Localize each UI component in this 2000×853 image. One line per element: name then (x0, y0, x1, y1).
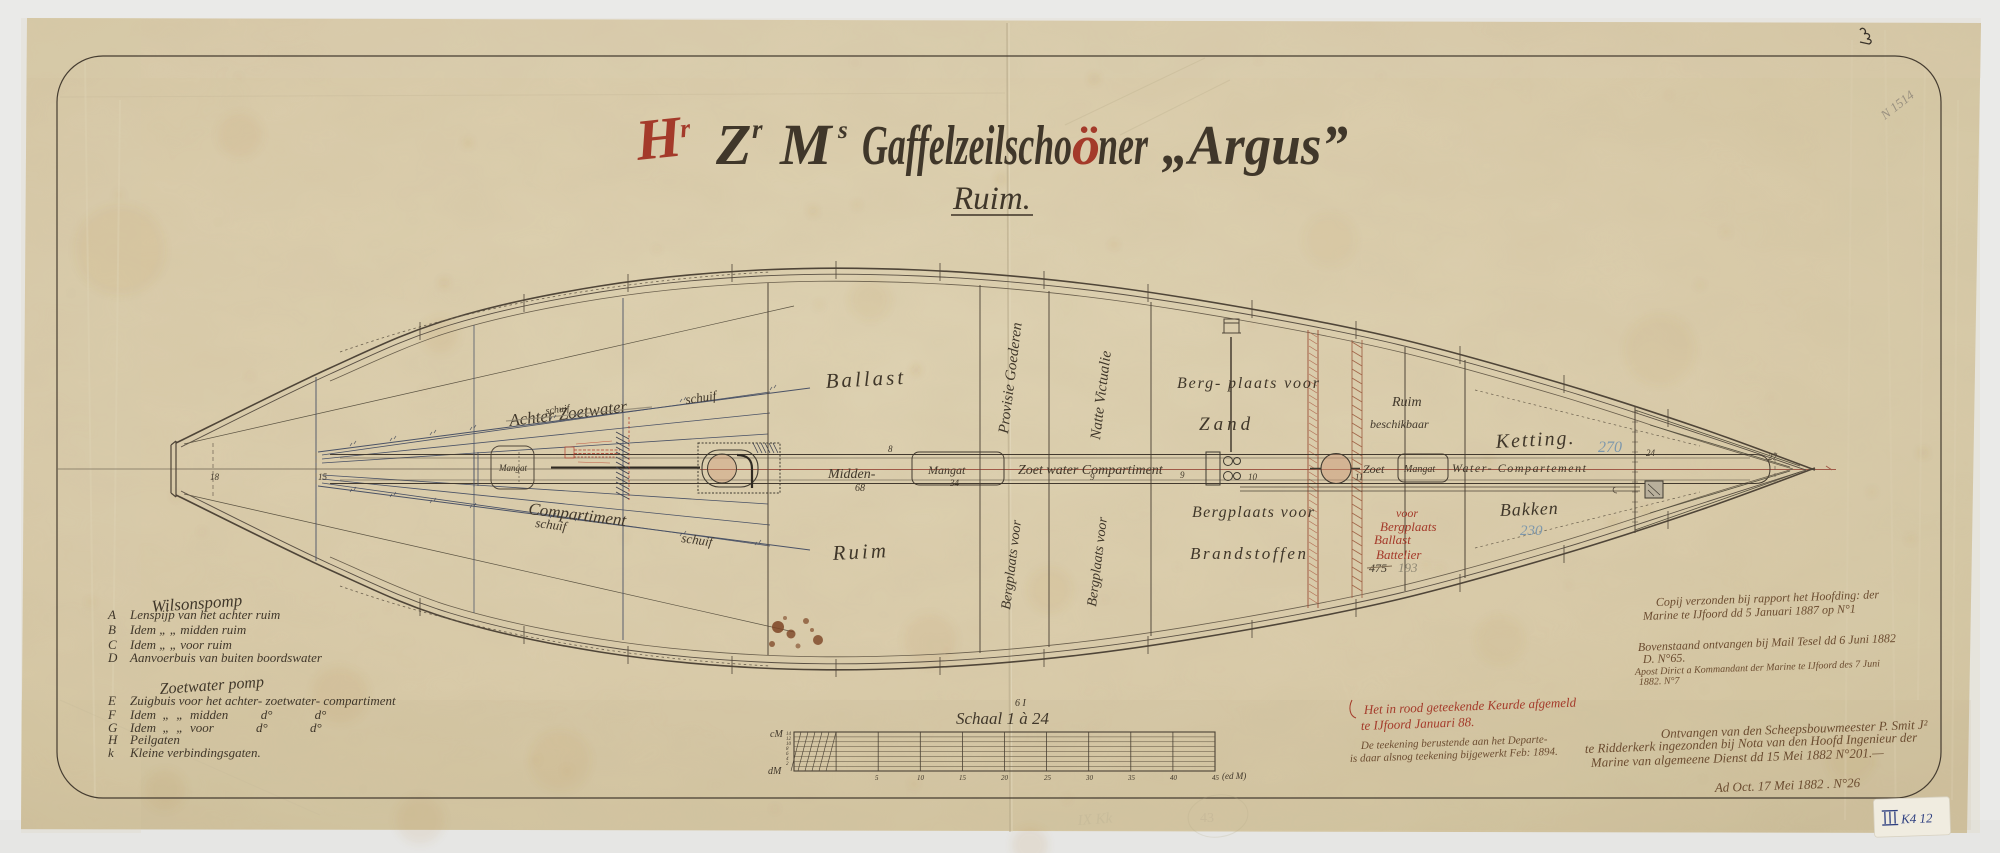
svg-text:r: r (752, 114, 763, 144)
svg-text:Midden-: Midden- (827, 467, 876, 482)
svg-text:34: 34 (949, 478, 960, 488)
svg-text:ner: ner (1098, 115, 1149, 177)
svg-text:Zoet: Zoet (1363, 462, 1385, 476)
svg-text:9: 9 (1180, 470, 1185, 480)
svg-text:12: 12 (786, 737, 792, 742)
svg-text:voor: voor (1396, 506, 1418, 520)
svg-text:Mangat: Mangat (1403, 464, 1435, 475)
svg-text:24: 24 (1646, 448, 1656, 458)
svg-text:Ballast: Ballast (1374, 532, 1411, 547)
svg-text:dM: dM (768, 766, 782, 777)
svg-text:35: 35 (1127, 774, 1136, 782)
svg-text:Berg- plaats voor: Berg- plaats voor (1177, 375, 1320, 392)
svg-text:Ruim: Ruim (831, 538, 890, 565)
svg-text:Water- Compartement: Water- Compartement (1452, 461, 1587, 475)
svg-text:230: 230 (1520, 523, 1543, 539)
svg-text:cM: cM (770, 729, 783, 740)
svg-text:Kleine verbindingsgaten.: Kleine verbindingsgaten. (129, 745, 261, 760)
svg-text:6 I: 6 I (1015, 698, 1027, 709)
svg-text:45: 45 (1212, 774, 1220, 782)
svg-text:Zand: Zand (1199, 414, 1254, 435)
svg-text:B: B (108, 622, 116, 637)
svg-text:IX Kk: IX Kk (1076, 811, 1113, 829)
svg-text:Ruim.: Ruim. (952, 181, 1031, 217)
svg-text:Ballast: Ballast (825, 365, 907, 393)
svg-text:s: s (837, 117, 848, 144)
svg-text:20: 20 (1001, 774, 1009, 782)
svg-text:Gaffelzeilscho: Gaffelzeilscho (862, 115, 1072, 177)
svg-text:A: A (107, 607, 116, 622)
svg-text:Brandstoffen: Brandstoffen (1190, 544, 1306, 563)
svg-text:D. N°65.: D. N°65. (1642, 651, 1686, 667)
svg-text:D: D (107, 650, 118, 665)
svg-text:10: 10 (786, 742, 792, 747)
svg-text:27: 27 (1768, 452, 1778, 462)
svg-text:9: 9 (1090, 472, 1095, 482)
svg-text:18: 18 (210, 472, 220, 482)
svg-text:30: 30 (1085, 774, 1094, 782)
svg-text:Z: Z (715, 112, 751, 177)
svg-text:25: 25 (1044, 774, 1052, 782)
svg-text:40: 40 (1170, 774, 1178, 782)
svg-text:Bakken: Bakken (1499, 498, 1559, 520)
svg-text:Zuigbuis voor het achter- zoe: Zuigbuis voor het achter- zoetwater- com… (130, 693, 396, 708)
svg-text:15: 15 (318, 472, 328, 482)
svg-text:11: 11 (1355, 472, 1363, 482)
svg-text:M: M (779, 112, 834, 177)
svg-text:K4 12: K4 12 (1900, 810, 1933, 826)
svg-text:ö: ö (1072, 115, 1100, 177)
svg-text:8: 8 (888, 444, 893, 454)
svg-text:15: 15 (959, 774, 967, 782)
svg-text:Aanvoerbuis van buiten boordsw: Aanvoerbuis van buiten boordswater (129, 650, 323, 665)
svg-text:E: E (107, 693, 116, 708)
svg-text:10: 10 (1248, 472, 1258, 482)
svg-text:68: 68 (855, 483, 865, 494)
svg-text:43: 43 (1200, 811, 1214, 826)
svg-text:Mangat: Mangat (927, 463, 966, 477)
svg-text:1882. N°7: 1882. N°7 (1639, 676, 1681, 688)
svg-text:beschikbaar: beschikbaar (1370, 417, 1429, 431)
svg-text:10: 10 (917, 774, 925, 782)
svg-text:Ketting.: Ketting. (1494, 427, 1576, 453)
svg-text:193: 193 (1398, 560, 1418, 575)
svg-text:14: 14 (786, 732, 792, 737)
svg-text:Schaal 1 à 24: Schaal 1 à 24 (956, 709, 1050, 728)
svg-text:(ed M): (ed M) (1222, 771, 1246, 781)
svg-text:5: 5 (875, 774, 879, 782)
svg-text:Idem „ „ midden: Idem „ „ midden ruim (129, 622, 246, 637)
svg-text:Ruim: Ruim (1391, 395, 1422, 410)
svg-text:Lenspijp van het achter ruim: Lenspijp van het achter ruim (129, 607, 280, 622)
svg-text:k: k (108, 745, 114, 760)
svg-text:Mangat: Mangat (498, 463, 527, 473)
svg-text:„Argus”: „Argus” (1162, 115, 1348, 177)
svg-text:270: 270 (1598, 439, 1622, 456)
